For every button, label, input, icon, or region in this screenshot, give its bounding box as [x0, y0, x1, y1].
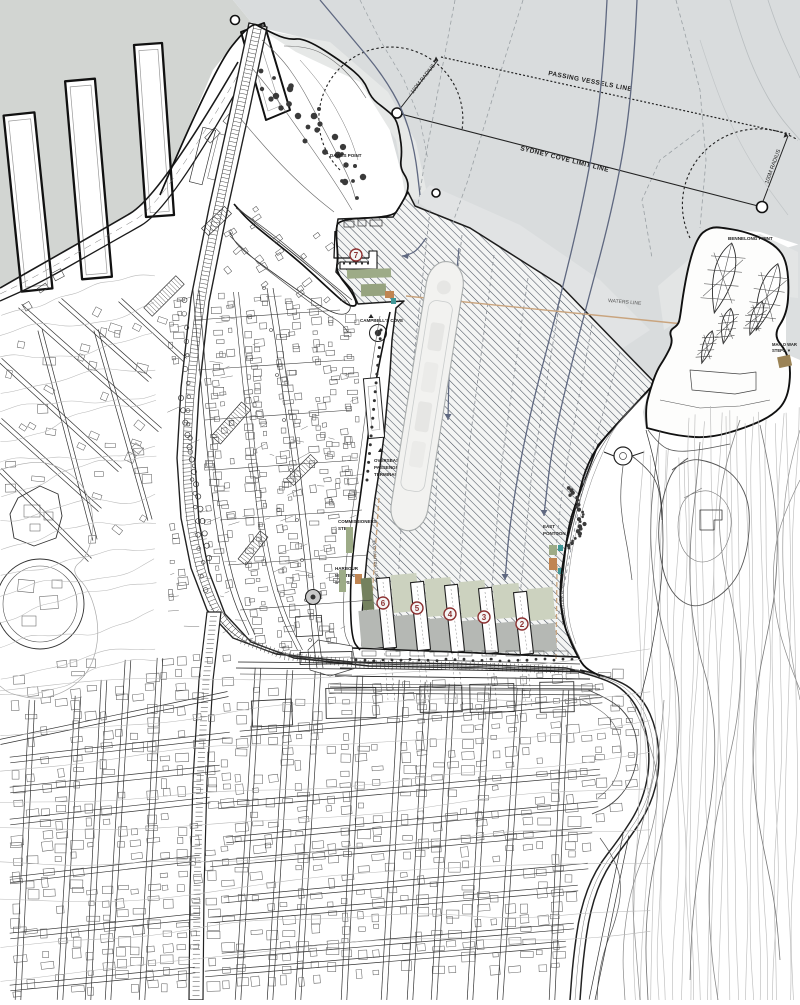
svg-text:TERMINAL: TERMINAL	[374, 472, 397, 477]
svg-text:OVERSEAS: OVERSEAS	[374, 458, 399, 463]
svg-text:3: 3	[482, 613, 487, 622]
svg-text:PONTOON: PONTOON	[543, 531, 566, 536]
svg-text:2: 2	[520, 620, 525, 629]
svg-text:MAN O WAR: MAN O WAR	[772, 342, 797, 347]
svg-text:HARBOUR: HARBOUR	[335, 566, 359, 571]
svg-text:6: 6	[381, 599, 386, 608]
svg-text:5: 5	[415, 604, 420, 613]
svg-text:4: 4	[448, 610, 453, 619]
svg-text:CAMPBELL'S COVE: CAMPBELL'S COVE	[360, 318, 403, 323]
svg-text:7: 7	[354, 251, 359, 260]
svg-text:EAST: EAST	[543, 524, 555, 529]
svg-text:MASTERS: MASTERS	[335, 573, 357, 578]
svg-text:COMMISSIONERS: COMMISSIONERS	[338, 519, 377, 524]
svg-text:BENNELONG POINT: BENNELONG POINT	[728, 236, 773, 241]
svg-text:DAWES POINT: DAWES POINT	[330, 153, 362, 158]
svg-text:STEPS ▼: STEPS ▼	[772, 348, 791, 353]
